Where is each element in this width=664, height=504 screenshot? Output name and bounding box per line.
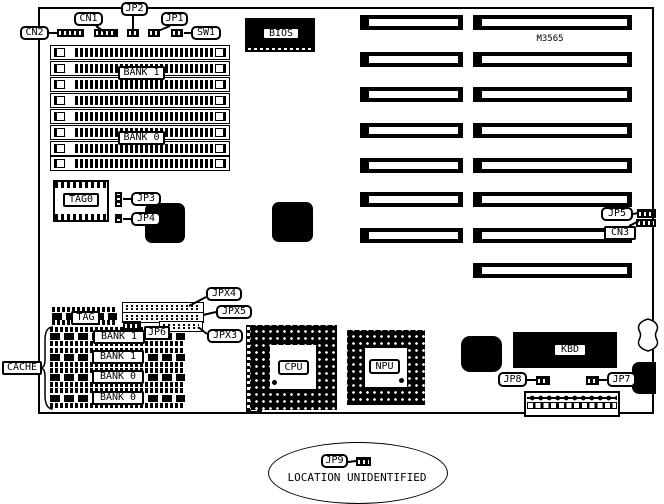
jp1-callout: JP1 — [161, 12, 188, 26]
cpu-socket: CPU — [250, 325, 337, 410]
jp5-label: JP5 — [608, 209, 626, 219]
cn1-label: CN1 — [79, 14, 97, 24]
jp8-jumper — [536, 376, 550, 385]
motherboard-diagram: CN2 CN1 JP2 JP1 SW1 BANK 1 BANK 0 BIOS M… — [0, 0, 664, 504]
jpx3-callout: JPX3 — [207, 329, 243, 343]
cache-bank1b-label: BANK 1 — [100, 352, 136, 362]
bios-text: BIOS — [269, 29, 293, 39]
jp9-jumper — [356, 457, 371, 466]
jp1-label: JP1 — [165, 14, 183, 24]
npu-chip-label: NPU — [369, 359, 400, 374]
tag-callout: TAG — [71, 311, 100, 325]
npu-text: NPU — [375, 362, 393, 372]
power-connector — [524, 391, 620, 417]
jp5-header — [637, 209, 656, 218]
cn3-callout: CN3 — [604, 226, 636, 240]
bank1-simm-callout: BANK 1 — [118, 66, 165, 80]
cache-bank0a-callout: BANK 0 — [92, 370, 144, 384]
jp6-label: JP6 — [148, 328, 166, 338]
jpx4-callout: JPX4 — [206, 287, 242, 301]
isa-slot-3-short — [360, 87, 463, 102]
cache-callout: CACHE — [2, 361, 42, 375]
cn2-header — [57, 29, 84, 37]
jp9-callout: JP9 — [321, 454, 348, 468]
cn1-header — [94, 29, 118, 37]
jp1-jumper — [148, 29, 160, 37]
bios-chip-label: BIOS — [262, 27, 300, 40]
simm-socket-5 — [50, 109, 230, 124]
isa-slot-1-short — [360, 15, 463, 30]
sw1-label: SW1 — [197, 28, 215, 38]
cache-bank0b-callout: BANK 0 — [92, 391, 144, 405]
chipset-chip-2 — [272, 202, 313, 242]
cache-bank0a-label: BANK 0 — [100, 372, 136, 382]
jp7-jumper — [586, 376, 599, 385]
cn2-callout: CN2 — [20, 26, 49, 40]
cache-bank1a-callout: BANK 1 — [93, 330, 145, 344]
jp6-header — [123, 321, 141, 330]
jp5-callout: JP5 — [601, 207, 633, 221]
sw1-callout: SW1 — [191, 26, 221, 40]
cn3-header — [636, 219, 656, 227]
cpu-pin1-dot — [272, 380, 277, 385]
cache-label: CACHE — [7, 363, 37, 373]
isa-slot-3-long — [473, 87, 632, 102]
jp7-callout: JP7 — [607, 372, 636, 387]
tag0-callout: TAG0 — [63, 193, 99, 207]
cn1-callout: CN1 — [74, 12, 103, 26]
simm-socket-8 — [50, 156, 230, 171]
bios-chip: BIOS — [245, 18, 315, 52]
cn2-label: CN2 — [25, 28, 43, 38]
isa-slot-4-short — [360, 123, 463, 138]
cn3-label: CN3 — [611, 228, 629, 238]
jpx5-label: JPX5 — [222, 307, 246, 317]
kbd-text: KBD — [561, 345, 579, 355]
jp2-jumper — [127, 29, 139, 37]
tag-label: TAG — [76, 313, 94, 323]
jp3-jumper — [115, 192, 122, 207]
isa-slot-6-long — [473, 192, 632, 207]
simm-socket-1 — [50, 45, 230, 60]
isa-slot-4-long — [473, 123, 632, 138]
isa-slot-6-short — [360, 192, 463, 207]
simm-socket-4 — [50, 93, 230, 108]
cache-bank1a-label: BANK 1 — [101, 332, 137, 342]
isa-slot-5-short — [360, 158, 463, 173]
isa-slot-2-short — [360, 52, 463, 67]
jp3-label: JP3 — [137, 194, 155, 204]
jp4-callout: JP4 — [131, 212, 161, 226]
jp9-label: JP9 — [325, 456, 343, 466]
bank1-simm-label: BANK 1 — [123, 68, 159, 78]
cache-bank0b-label: BANK 0 — [100, 393, 136, 403]
power-connector-pins — [527, 394, 617, 402]
bank0-simm-callout: BANK 0 — [118, 131, 165, 145]
jp8-callout: JP8 — [498, 372, 527, 387]
jp3-callout: JP3 — [131, 192, 161, 206]
npu-socket-inner: NPU — [365, 348, 407, 387]
sw1-switch — [171, 29, 183, 37]
jpx5-callout: JPX5 — [216, 305, 252, 319]
isa-slot-8-long — [473, 263, 632, 278]
isa-slot-1-long — [473, 15, 632, 30]
chipset-chip-3 — [461, 336, 502, 372]
npu-pin1-dot — [399, 378, 404, 383]
board-model: M3565 — [505, 34, 595, 44]
jp4-label: JP4 — [137, 214, 155, 224]
isa-slot-7-short — [360, 228, 463, 243]
isa-slot-5-long — [473, 158, 632, 173]
cache-bank1b-callout: BANK 1 — [92, 350, 144, 364]
cpu-socket-inner: CPU — [270, 345, 316, 389]
jp7-label: JP7 — [612, 375, 630, 385]
jp2-label: JP2 — [125, 4, 143, 14]
isa-slot-2-long — [473, 52, 632, 67]
jpx4-label: JPX4 — [212, 289, 236, 299]
npu-socket: NPU — [347, 330, 425, 405]
note-text: LOCATION UNIDENTIFIED — [278, 471, 436, 484]
kbd-chip-label: KBD — [553, 343, 587, 357]
jpx3-label: JPX3 — [213, 331, 237, 341]
jp4-jumper — [115, 214, 122, 223]
power-connector-slots — [527, 402, 617, 409]
cpu-chip-label: CPU — [278, 360, 309, 375]
tag0-label: TAG0 — [69, 195, 93, 205]
jp6-callout: JP6 — [144, 326, 170, 340]
jp8-label: JP8 — [503, 375, 521, 385]
cpu-text: CPU — [284, 363, 302, 373]
jp2-callout: JP2 — [121, 2, 148, 16]
kbd-chip: KBD — [513, 332, 617, 368]
bank0-simm-label: BANK 0 — [123, 133, 159, 143]
